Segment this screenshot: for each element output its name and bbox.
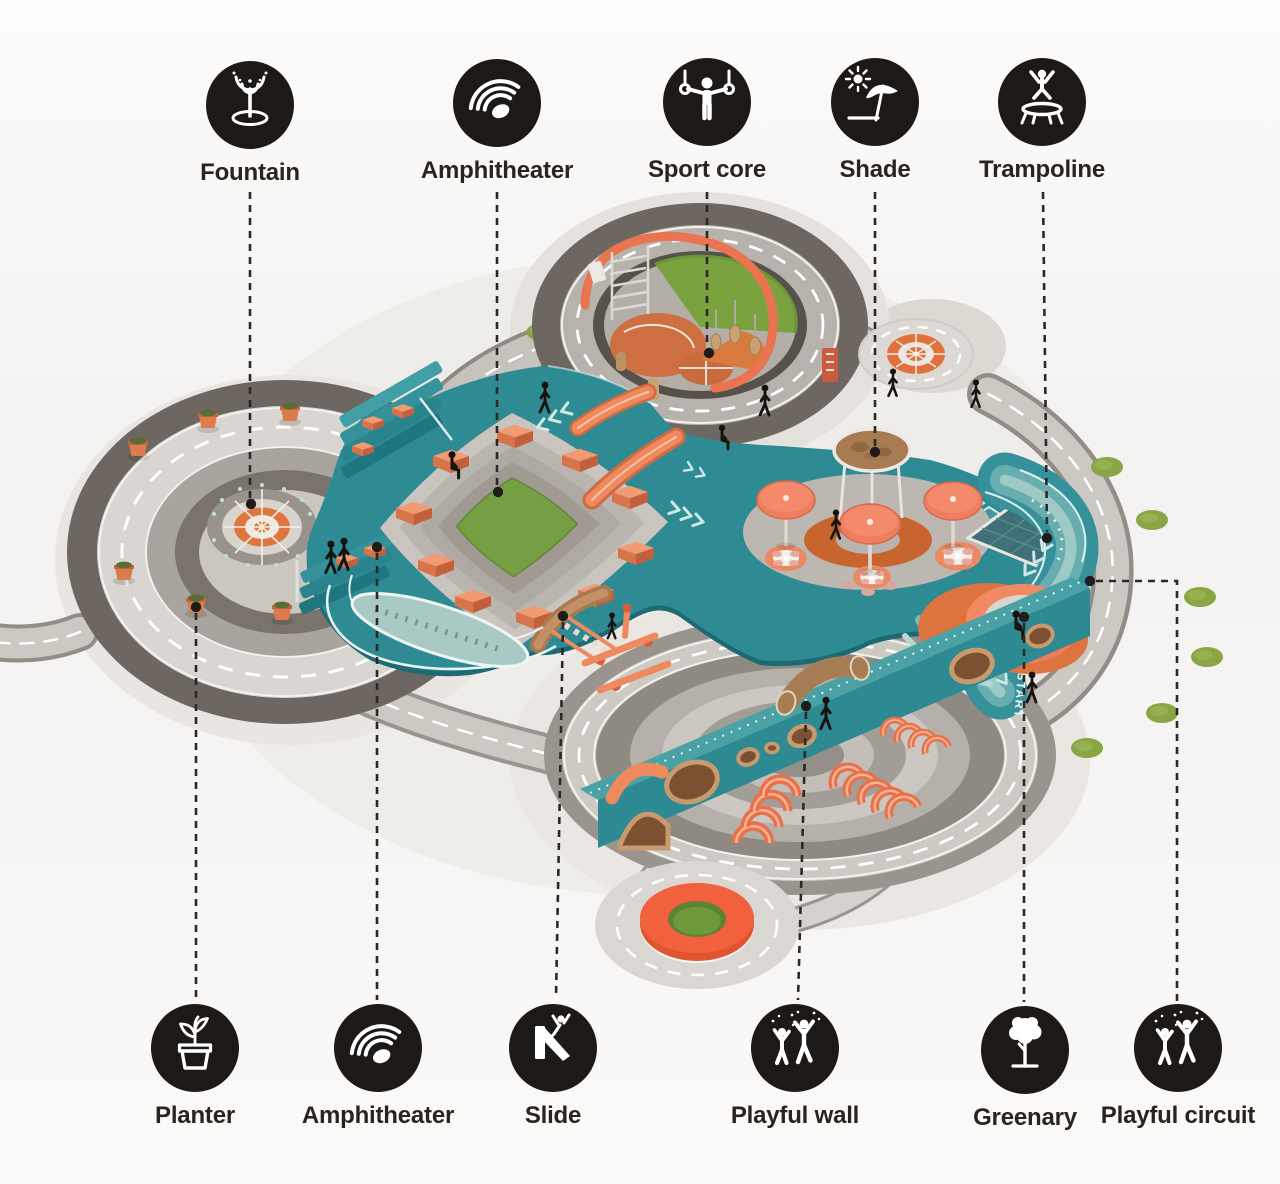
bottom-roundabout	[595, 861, 799, 989]
legend-label: Trampoline	[979, 157, 1105, 183]
amphitheater-icon	[334, 1004, 422, 1092]
slide-icon	[509, 1004, 597, 1092]
legend-label: Sport core	[648, 157, 766, 183]
fountain-icon	[206, 61, 294, 149]
trampoline-icon	[998, 58, 1086, 146]
legend-item-playful-circuit: Playful circuit	[1053, 1004, 1280, 1129]
amphitheater-icon	[453, 59, 541, 147]
legend-label: Playful circuit	[1101, 1103, 1255, 1129]
playful-wall-icon	[751, 1004, 839, 1092]
legend-label: Shade	[839, 157, 910, 183]
legend-label: Playful wall	[731, 1103, 859, 1129]
sport-core-icon	[663, 58, 751, 146]
legend-item-playful-wall: Playful wall	[670, 1004, 920, 1129]
playful-circuit-icon	[1134, 1004, 1222, 1092]
legend-label: Fountain	[200, 160, 300, 186]
legend-item-slide: Slide	[428, 1004, 678, 1129]
shade-icon	[831, 58, 919, 146]
greenary-torus-small	[640, 883, 754, 961]
legend-label: Amphitheater	[421, 158, 573, 184]
legend-item-trampoline: Trampoline	[917, 58, 1167, 183]
planter-icon	[151, 1004, 239, 1092]
legend-label: Slide	[525, 1103, 581, 1129]
legend-item-fountain: Fountain	[125, 61, 375, 186]
playground-legend-diagram: JUMP START	[0, 0, 1280, 1184]
legend-label: Planter	[155, 1103, 235, 1129]
